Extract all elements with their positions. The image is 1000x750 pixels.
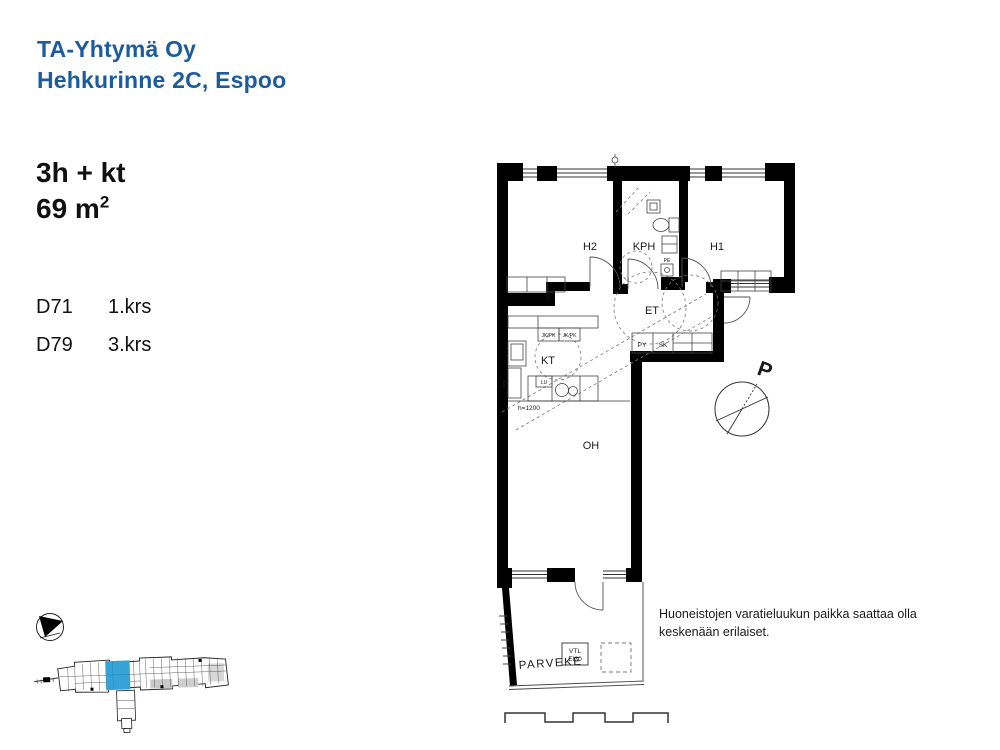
label-py: PY	[638, 342, 647, 349]
north-arrow-icon	[37, 614, 64, 641]
room-label-et: ET	[645, 305, 659, 317]
scale-bar	[505, 713, 668, 723]
label-sk: SK	[659, 342, 668, 349]
room-label-h1: H1	[710, 241, 724, 253]
room-label-kt: KT	[541, 355, 555, 367]
label-kitchen-note: 3xM	[502, 379, 508, 388]
room-label-parveke: PARVEKE	[518, 656, 582, 672]
site-key-plan	[33, 614, 229, 736]
vent-icon	[612, 154, 618, 168]
apartment-plan: H2 KPH H1 ET KT OH JK/PK JK/PK PY SK LU …	[497, 154, 795, 690]
label-height-note: h=1200	[518, 405, 540, 412]
label-fridge: JK/PK	[542, 333, 557, 339]
room-label-oh: OH	[583, 440, 600, 452]
label-stove: LU	[541, 380, 548, 386]
compass-icon: P	[715, 357, 775, 436]
compass-north-letter: P	[754, 357, 775, 383]
building-footprint	[33, 655, 229, 736]
floorplan-page: TA-Yhtymä Oy Hehkurinne 2C, Espoo 3h + k…	[0, 0, 1000, 750]
room-label-h2: H2	[583, 241, 597, 253]
label-freezer: JK/PK	[563, 333, 578, 339]
floorplan-drawing: H2 KPH H1 ET KT OH JK/PK JK/PK PY SK LU …	[0, 0, 1000, 750]
label-dimension: 2435	[546, 290, 552, 301]
room-label-kph: KPH	[633, 241, 656, 253]
label-vtl: VTL	[569, 648, 581, 655]
balcony	[499, 582, 644, 690]
label-pe: PE	[664, 258, 671, 264]
